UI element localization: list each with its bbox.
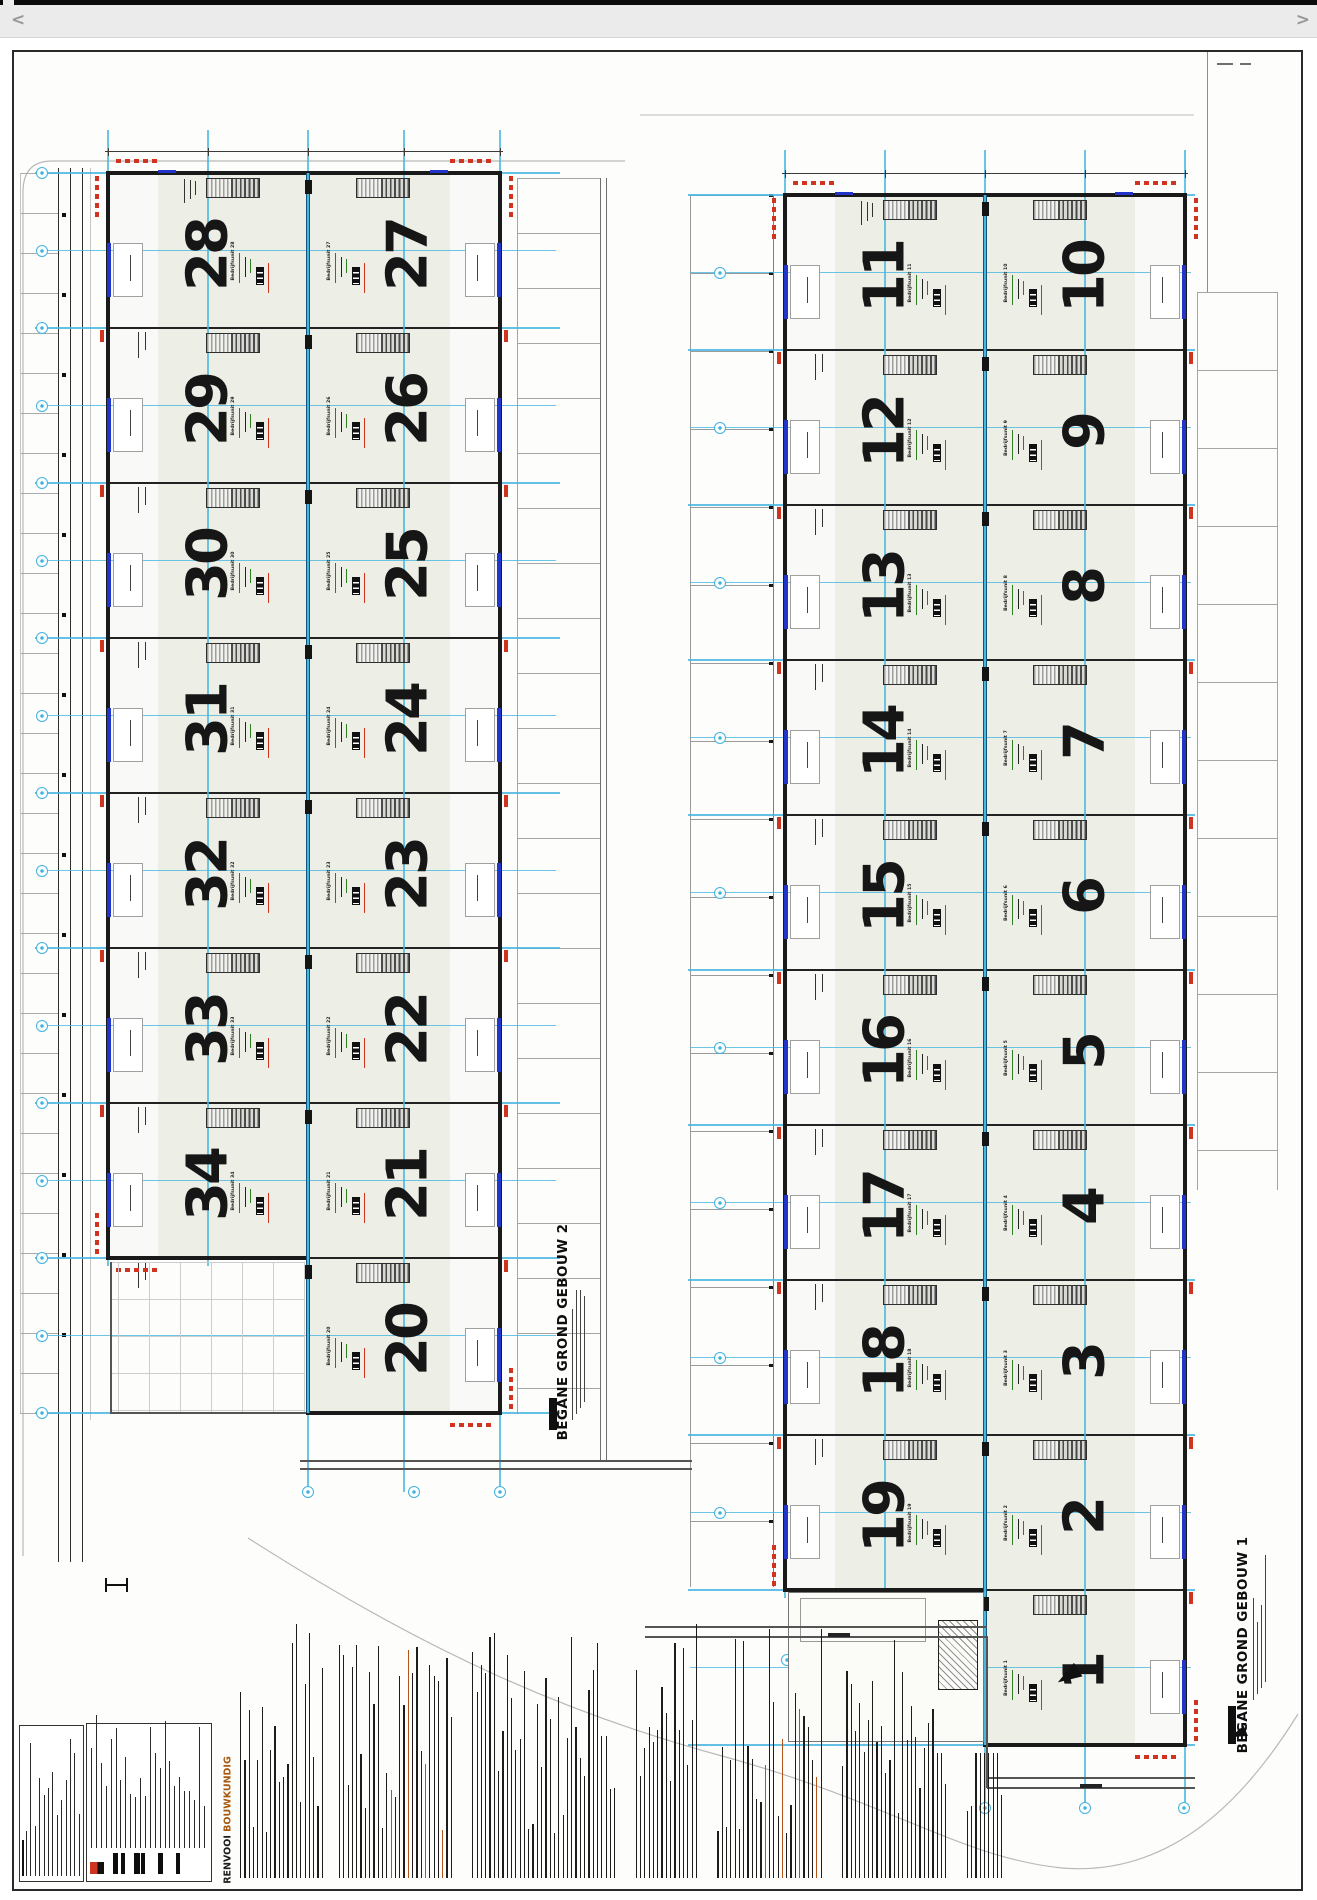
meter-box-icon [352,1197,360,1215]
text-smudge-line [346,569,347,583]
text-smudge-line [268,1038,269,1068]
text-smudge-line [927,1211,928,1225]
road-post-dot [769,662,773,666]
text-smudge-line [1012,740,1013,770]
text-smudge-line [1012,1670,1013,1700]
parking-stall-line [1197,682,1277,683]
meter-box-icon [352,1042,360,1060]
legend-text-line [160,1768,161,1848]
unit-label: Bedrijfsunit 10 [1003,263,1008,302]
notes-text-line [481,1665,482,1878]
parking-edge-line [1277,292,1278,1190]
unit-number: 26 [376,374,441,446]
door-recess [465,553,495,607]
text-smudge-line [346,1034,347,1048]
notes-text-line [451,1717,452,1878]
text-smudge-line [1012,1050,1013,1080]
notes-text-line [520,1739,521,1878]
legend-text-line [135,1797,136,1848]
door-recess [113,708,143,762]
parking-stall-line [517,288,600,289]
text-smudge-line [268,418,269,448]
notes-text-line [279,1782,280,1878]
notes-text-line [266,1832,267,1878]
parking-stall-line [20,1133,58,1134]
fold-mark [1240,63,1251,65]
stair-run [1058,1596,1086,1614]
parking-stall-line [1197,370,1277,371]
unit-number: 6 [1053,879,1118,915]
parking-edge-line [690,195,691,1587]
text-smudge-line [922,1054,923,1074]
window-mark [158,170,176,173]
text-smudge-line [1012,1205,1013,1235]
text-smudge-line [335,1183,336,1213]
stair-icon [356,798,410,818]
stair-icon [206,488,260,508]
text-smudge-line [815,509,816,535]
door-leaf-blue [784,1350,788,1404]
notes-text-line [932,1709,933,1878]
notes-text-line [859,1703,860,1878]
text-smudge-line [477,565,478,591]
stair-run [1034,1441,1058,1459]
stair-run [1058,976,1086,994]
stair-run [884,356,908,374]
stair-icon [1033,355,1087,375]
road-post-dot [769,428,773,432]
text-smudge-line [239,873,240,903]
courtyard-edge [110,1262,112,1414]
parking-stall-line [690,819,773,820]
notes-text-line [666,1713,667,1878]
legend-text-line [101,1763,102,1848]
spine-door [305,645,312,659]
spine-axis-cyan [307,173,308,1413]
door-recess [1150,1040,1180,1094]
notes-text-line [606,1736,607,1878]
notes-text-line [864,1752,865,1878]
unit-number: 10 [1053,241,1118,313]
door-recess [790,420,820,474]
door-leaf-blue [784,420,788,474]
unit-label: Bedrijfsunit 22 [326,1016,331,1055]
corner-mark-red [509,176,513,218]
parking-stall-line [690,1521,773,1522]
notes-text-line [692,1720,693,1878]
meter-box-icon [352,577,360,595]
notes-text-line [446,1658,447,1878]
notes-text-line [855,1731,856,1878]
door-leaf-blue [784,730,788,784]
text-smudge-line [945,595,946,625]
stair-icon [1033,665,1087,685]
unit-label: Bedrijfsunit 30 [230,551,235,590]
parking-stall-line [517,1058,600,1059]
stair-run [908,201,936,219]
title-gebouw-2: BEGANE GROND GEBOUW 2 [555,1224,571,1441]
grid-bubble [408,1486,420,1498]
text-smudge-line [250,569,251,583]
parking-stall-line [20,693,58,694]
door-recess [113,243,143,297]
notes-text-line [614,1788,615,1878]
meter-box-icon [1029,1684,1037,1702]
road-edge-line [82,168,83,1562]
spine-door [982,977,989,991]
meter-box-icon [256,267,264,285]
parking-stall-line [690,351,773,352]
door-recess [465,1328,495,1382]
text-smudge-line [245,257,246,277]
text-smudge-line [1018,1209,1019,1229]
notes-text-line [644,1748,645,1878]
grid-bubble [714,887,726,899]
text-smudge-line [927,901,928,915]
text-smudge-line [364,728,365,758]
notes-text-line [1001,1795,1002,1878]
notes-text-line [915,1737,916,1878]
fire-mark-red [100,1105,104,1117]
notes-text-line [786,1833,787,1878]
stair-run [884,1286,908,1304]
notes-text-line [842,1766,843,1878]
notes-text-line [967,1811,968,1878]
text-smudge-line [916,275,917,305]
spine-door [305,335,312,349]
notes-text-line [339,1645,340,1878]
road-post-dot [769,1364,773,1368]
notes-text-line [511,1698,512,1878]
corner-mark-red [1135,181,1177,185]
door-leaf-blue [1182,1040,1186,1094]
stair-icon [1033,510,1087,530]
door-recess [1150,1660,1180,1714]
stair-icon [356,953,410,973]
text-smudge-line [130,875,131,901]
text-smudge-line [1023,1521,1024,1535]
unit-number: 2 [1053,1499,1118,1535]
notes-text-line [524,1671,525,1878]
notes-text-line [588,1690,589,1878]
notes-text-line [765,1765,766,1878]
window-mark [835,192,853,195]
notes-text-line [399,1676,400,1878]
door-recess [1150,265,1180,319]
text-smudge-line [916,1050,917,1080]
parking-edge-line [20,173,21,1413]
parking-stall-line [690,741,773,742]
stair-run [908,821,936,839]
notes-text-line [575,1727,576,1878]
notes-text-line [696,1624,697,1878]
notes-text-line [348,1785,349,1878]
grid-bubble [302,1486,314,1498]
text-smudge-line [130,1185,131,1211]
text-smudge-line [477,255,478,281]
spine-door [982,357,989,371]
notes-text-line [365,1808,366,1878]
parking-stall-line [690,663,773,664]
text-smudge-line [341,1032,342,1052]
grid-bubble [36,1175,48,1187]
parking-stall-line [20,813,58,814]
meter-box-icon [1029,444,1037,462]
grid-bubble [36,1020,48,1032]
notes-text-line [851,1684,852,1878]
legend-text-line [57,1815,58,1876]
notes-text-line [356,1645,357,1878]
text-smudge-line [239,563,240,593]
nav-prev-button[interactable]: < [11,10,25,30]
door-leaf-blue [1182,575,1186,629]
text-smudge-line [1012,1360,1013,1390]
legend-text-line [35,1826,36,1876]
meter-box-icon [352,267,360,285]
text-smudge-line [916,585,917,615]
meter-box-icon [256,1042,264,1060]
text-smudge-line [145,642,146,660]
notes-text-line [924,1748,925,1878]
meter-box-icon [352,887,360,905]
meter-box-icon [256,1197,264,1215]
corner-mark-red [450,159,492,163]
grid-bubble [714,1197,726,1209]
text-smudge-line [1012,585,1013,615]
parking-stall-line [690,975,773,976]
parking-stall-line [690,1053,773,1054]
text-smudge-line [341,1342,342,1362]
stair-icon [206,1108,260,1128]
road-post-dot [769,1052,773,1056]
text-smudge-line [190,180,191,199]
notes-text-line [563,1815,564,1878]
stair-run [381,1109,409,1127]
legend-text-line [125,1757,126,1848]
text-smudge-line [1041,1525,1042,1555]
notes-text-line [477,1692,478,1878]
text-smudge-line [341,877,342,897]
outer-wall [306,1411,502,1415]
door-leaf-blue [107,1173,111,1227]
stair-run [207,1109,231,1127]
door-recess [1150,575,1180,629]
text-smudge-line [268,263,269,293]
door-leaf-blue [784,1505,788,1559]
section-mark-icon [107,1584,126,1586]
notes-text-line [790,1805,791,1878]
door-leaf-blue [497,863,501,917]
stair-icon [883,975,937,995]
stair-run [357,1109,381,1127]
unit-label: Bedrijfsunit 24 [326,706,331,745]
text-smudge-line [867,202,868,221]
notes-text-line [730,1760,731,1878]
corner-mark-red [116,159,158,163]
fire-mark-red [504,1260,508,1272]
unit-label: Bedrijfsunit 4 [1003,1195,1008,1231]
notes-text-line [902,1672,903,1878]
unit-label: Bedrijfsunit 19 [907,1503,912,1542]
grid-bubble [36,1407,48,1419]
text-smudge-line [815,1439,816,1465]
legend-symbol-bar [134,1853,140,1874]
meter-box-icon [1029,289,1037,307]
notes-text-line [756,1799,757,1878]
text-smudge-line [1041,595,1042,625]
legend-text-line [111,1739,112,1848]
text-smudge-line [815,819,816,845]
text-smudge-line [1023,1676,1024,1690]
notes-text-line [726,1827,727,1878]
unit-number: 9 [1053,414,1118,450]
fire-mark-red [1189,507,1193,519]
meter-box-icon [256,422,264,440]
text-smudge-line [807,587,808,613]
titleblock-logo-gebouw1 [1228,1706,1236,1744]
fire-mark-red [777,662,781,674]
text-smudge-line [1023,436,1024,450]
notes-text-line [249,1710,250,1878]
text-smudge-line [268,1193,269,1223]
notes-text-line [799,1709,800,1878]
grid-bubble [36,167,48,179]
nav-next-button[interactable]: > [1296,10,1310,30]
notes-text-line [803,1716,804,1878]
door-leaf-blue [107,553,111,607]
unit-label: Bedrijfsunit 20 [326,1326,331,1365]
parking-stall-line [517,893,600,894]
text-smudge-line [477,1185,478,1211]
door-leaf-blue [497,1173,501,1227]
road-mark [828,1633,850,1637]
grid-bubble [714,1507,726,1519]
notes-text-line [494,1633,495,1878]
text-smudge-line [138,1262,139,1288]
fire-mark-red [100,330,104,342]
stair-run [1058,1441,1086,1459]
text-smudge-line [916,430,917,460]
text-smudge-line [945,285,946,315]
corner-mark-red [95,176,99,218]
notes-text-line [421,1751,422,1878]
text-smudge-line [1041,1215,1042,1245]
text-smudge-line [239,253,240,283]
notes-text-line [670,1781,671,1878]
unit-number: 7 [1053,724,1118,760]
outer-wall [983,1743,1187,1747]
unit-label: Bedrijfsunit 34 [230,1171,235,1210]
legend-text-line [91,1748,92,1848]
corner-mark-red [772,198,776,240]
notes-text-line [872,1681,873,1878]
text-smudge-line [477,1030,478,1056]
notes-text-line [429,1665,430,1878]
parking-stall-line [20,293,58,294]
corner-mark-red [116,1268,158,1272]
stair-run [381,334,409,352]
titleblock-info-line [576,1290,577,1414]
meter-box-icon [352,422,360,440]
text-smudge-line [807,277,808,303]
road-edge-line [70,168,71,1562]
text-smudge-line [145,1107,146,1125]
notes-text-line [545,1678,546,1878]
notes-text-line [584,1776,585,1878]
spine-door [982,512,989,526]
window-top-notch [3,0,14,5]
meter-box-icon [933,1064,941,1082]
text-smudge-line [364,1348,365,1378]
meter-box-icon [933,1529,941,1547]
stair-run [357,334,381,352]
notes-text-line [554,1833,555,1878]
legend-text-line [120,1780,121,1848]
stair-icon [1033,1285,1087,1305]
text-smudge-line [807,897,808,923]
stair-icon [1033,820,1087,840]
notes-text-line [975,1753,976,1878]
notes-text-line [541,1767,542,1878]
road-post-dot [769,584,773,588]
door-recess [1150,420,1180,474]
door-leaf-blue [497,398,501,452]
parking-stall-line [20,453,58,454]
stair-run [231,799,259,817]
unit-label: Bedrijfsunit 29 [230,396,235,435]
text-smudge-line [477,1340,478,1366]
notes-text-line [941,1753,942,1878]
legend-text-line [199,1727,200,1848]
text-smudge-line [145,952,146,970]
meter-box-icon [933,444,941,462]
text-smudge-line [250,259,251,273]
stair-run [1058,511,1086,529]
grid-bubble [714,577,726,589]
road-post-dot [62,453,66,457]
text-smudge-line [916,1360,917,1390]
unit-number: 3 [1053,1344,1118,1380]
text-smudge-line [346,1344,347,1358]
unit-label: Bedrijfsunit 3 [1003,1350,1008,1386]
road-post-dot [769,1520,773,1524]
fire-mark-red [777,507,781,519]
text-smudge-line [130,720,131,746]
unit-label: Bedrijfsunit 16 [907,1038,912,1077]
grid-bubble [36,787,48,799]
parking-stall-line [517,508,600,509]
legend-text-line [140,1778,141,1848]
grid-bubble [714,267,726,279]
door-leaf-blue [497,1328,501,1382]
text-smudge-line [138,797,139,823]
parking-stall-line [517,783,600,784]
door-recess [113,863,143,917]
door-leaf-blue [1182,1660,1186,1714]
text-smudge-line [1162,897,1163,923]
notes-text-line [881,1726,882,1878]
notes-text-line [352,1667,353,1878]
parking-stall-line [517,398,600,399]
notes-text-line [984,1753,985,1878]
dimension-tick [308,148,309,156]
text-smudge-line [364,263,365,293]
stair-run [884,1441,908,1459]
notes-text-line [257,1760,258,1878]
stair-icon [1033,975,1087,995]
text-smudge-line [927,746,928,760]
dimension-tick [404,148,405,156]
